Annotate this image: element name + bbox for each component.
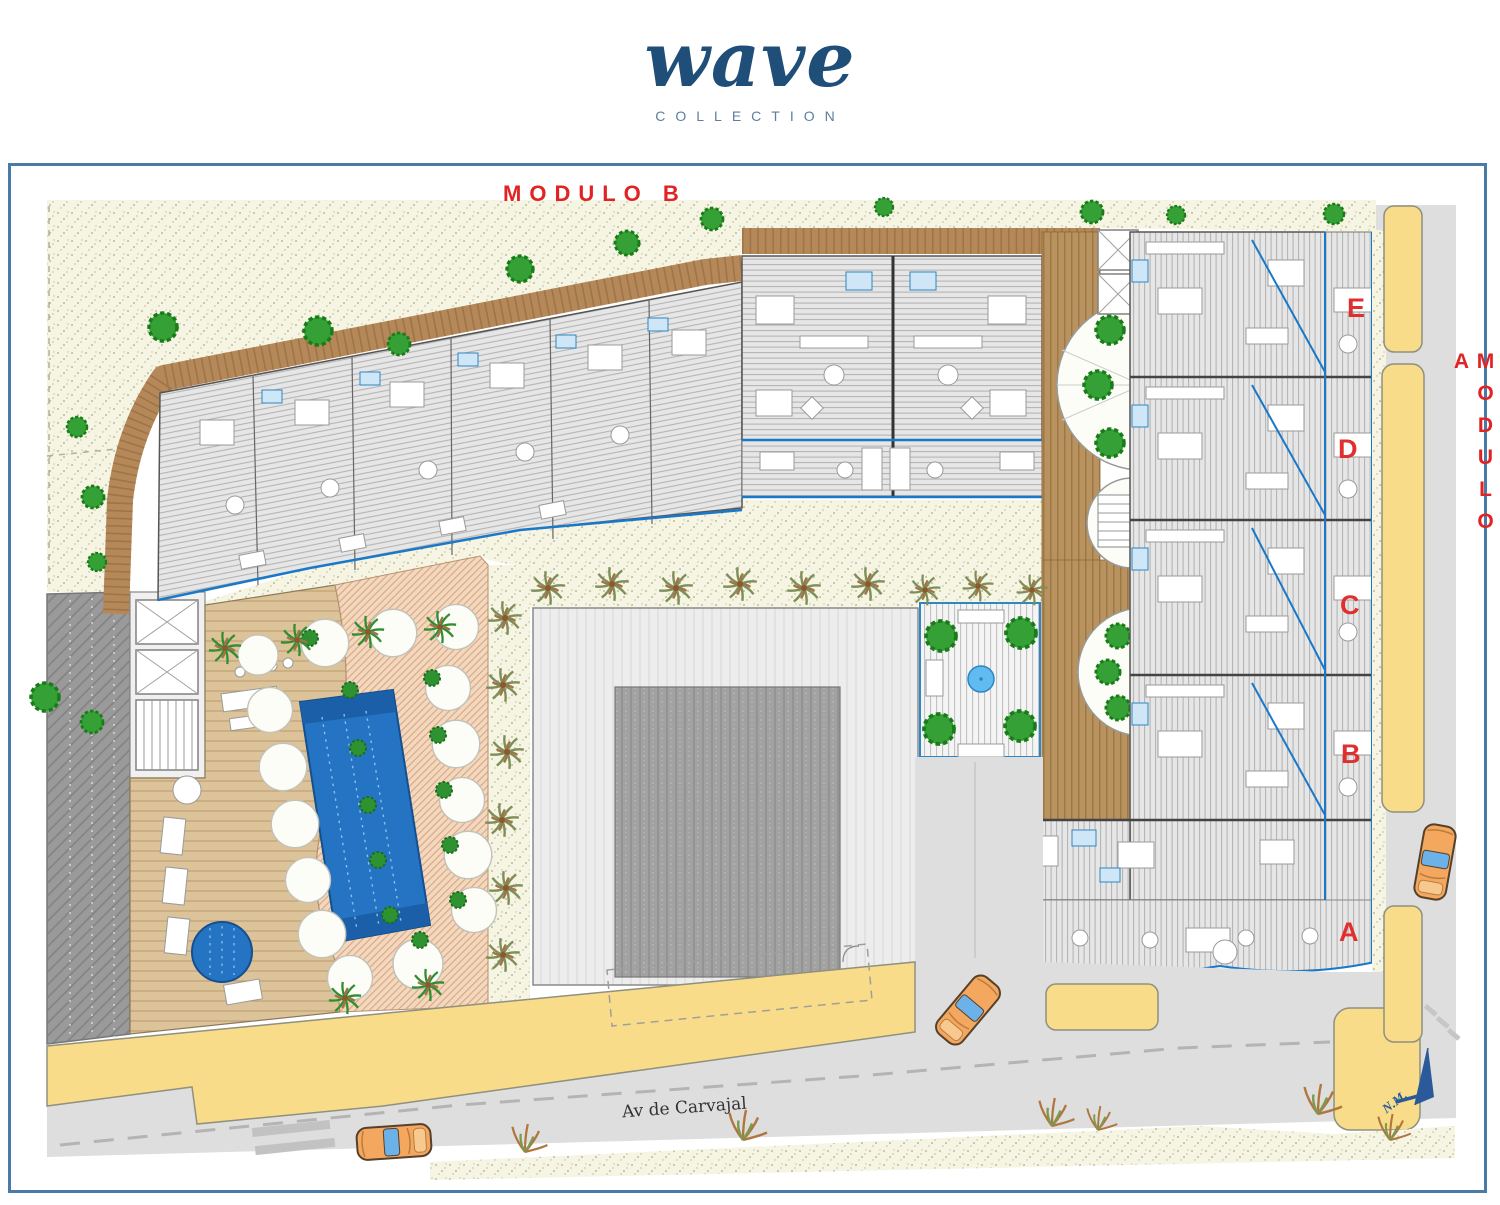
label-modulo-b: MODULO B [503,181,687,207]
unit-letter-b: B [1341,739,1361,770]
unit-letter-d: D [1338,434,1358,465]
plan-frame-border [8,163,1487,1193]
unit-letter-a: A [1339,917,1359,948]
unit-letter-c: C [1340,590,1360,621]
unit-letter-e: E [1347,293,1365,324]
label-modulo-a: MODULO A [1449,350,1497,620]
site-plan-page: wave COLLECTION [0,0,1500,1205]
